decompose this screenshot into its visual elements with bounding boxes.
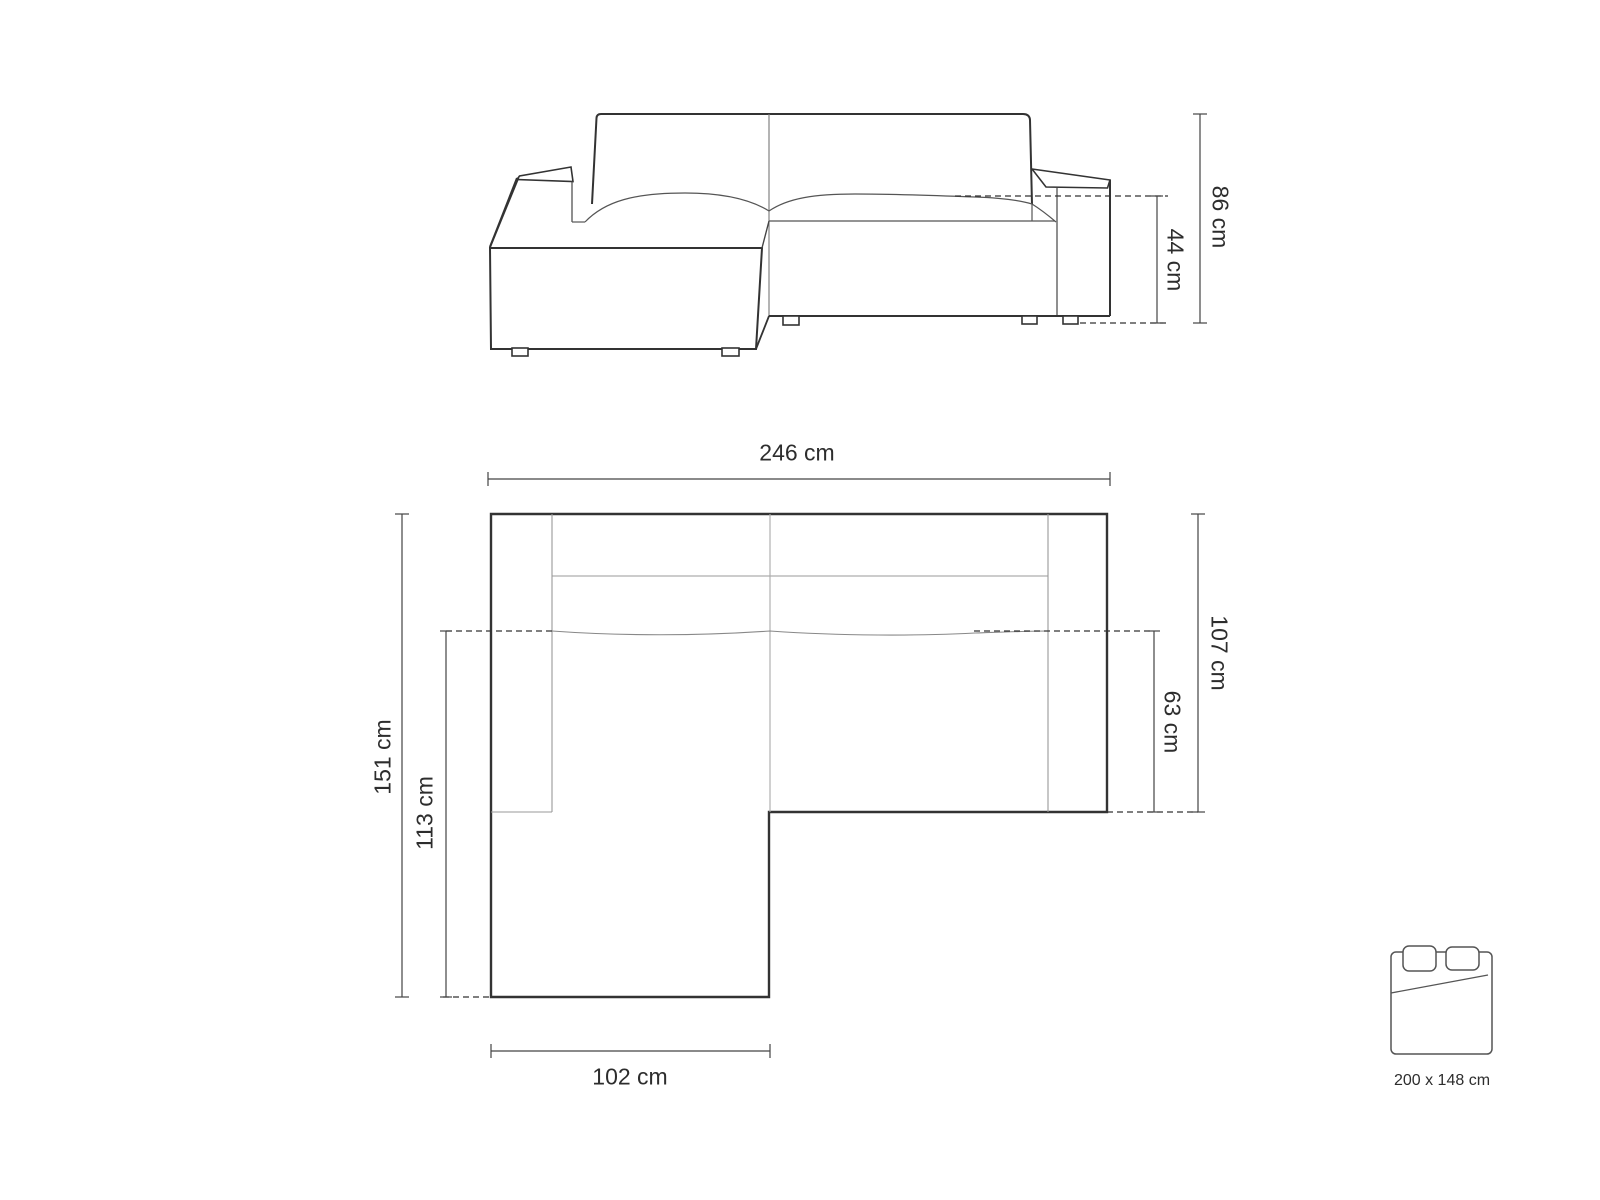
right-armrest-top (1032, 169, 1110, 188)
seat-cushion-lines (572, 193, 1056, 222)
backrest-outline (592, 114, 1032, 204)
sleeping-area-size-label: 200 x 148 cm (1394, 1073, 1490, 1089)
chaise-left-diagonal (490, 178, 517, 247)
dimension-label-total-height: 86 cm (1209, 186, 1232, 249)
plan-view-drawing (395, 472, 1205, 1058)
bed-pillow-right (1446, 947, 1479, 970)
dimension-label-seat-height: 44 cm (1164, 229, 1187, 292)
left-armrest-top (517, 167, 573, 182)
front-dimension-lines (1151, 114, 1207, 323)
front-reference-dashes (955, 196, 1168, 323)
diagram-drawing (0, 0, 1600, 1200)
front-view-drawing (490, 114, 1207, 356)
dimension-label-body-depth: 107 cm (1208, 615, 1231, 690)
dimension-label-seat-depth: 63 cm (1161, 691, 1184, 754)
dimension-label-chaise-depth: 113 cm (414, 776, 437, 850)
double-bed-icon (1391, 946, 1492, 1054)
chaise-right-upper-diagonal (762, 221, 769, 248)
dimension-label-total-depth: 151 cm (372, 719, 395, 794)
plan-outline (491, 514, 1107, 997)
dimension-label-chaise-width: 102 cm (592, 1066, 667, 1089)
bed-pillow-left (1403, 946, 1436, 971)
sofa-dimension-diagram: 86 cm 44 cm 246 cm 151 cm 113 cm 107 cm … (0, 0, 1600, 1200)
dimension-label-total-width: 246 cm (759, 442, 834, 465)
chaise-block-outline (490, 248, 762, 349)
